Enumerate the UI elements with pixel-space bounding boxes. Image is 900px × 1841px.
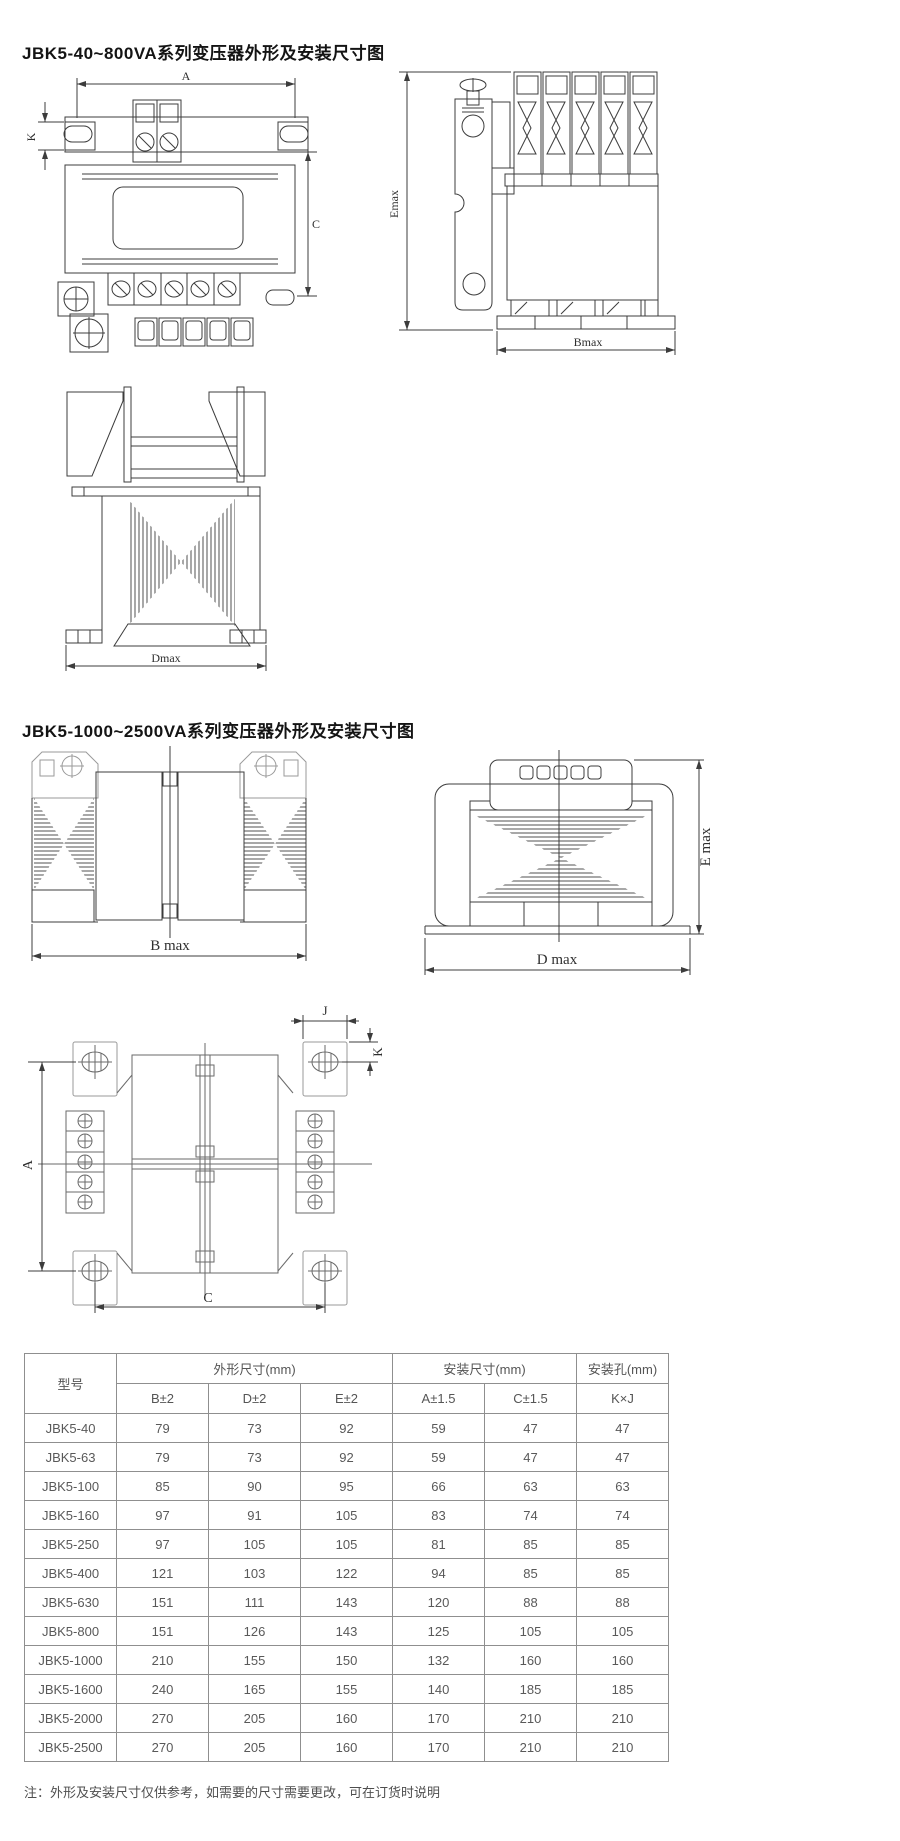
dim-j: J [291,1003,359,1039]
value-cell-d: 126 [209,1617,301,1646]
value-cell-a: 125 [393,1617,485,1646]
body-outline [32,798,306,922]
value-cell-b: 85 [117,1472,209,1501]
value-cell-e: 160 [301,1704,393,1733]
model-cell: JBK5-160 [25,1501,117,1530]
value-cell-kj: 85 [577,1530,669,1559]
core-body [65,165,295,273]
base-feet [497,300,675,329]
value-cell-c: 85 [485,1530,577,1559]
value-cell-d: 165 [209,1675,301,1704]
value-cell-a: 83 [393,1501,485,1530]
value-cell-e: 105 [301,1530,393,1559]
core-clamps [67,387,265,496]
value-cell-d: 90 [209,1472,301,1501]
value-cell-c: 88 [485,1588,577,1617]
dim-label-bmax: Bmax [574,335,603,349]
table-sub-header-row: B±2 D±2 E±2 A±1.5 C±1.5 K×J [25,1384,669,1414]
dim-emax: E max [634,760,714,934]
col-group-outline-dimensions: 外形尺寸(mm) [117,1354,393,1384]
value-cell-b: 79 [117,1443,209,1472]
table-row: JBK5-63 79 73 92 59 47 47 [25,1443,669,1472]
value-cell-a: 140 [393,1675,485,1704]
value-cell-e: 143 [301,1617,393,1646]
terminal-housing [490,760,632,810]
dim-bmax: Bmax [497,331,675,355]
value-cell-e: 92 [301,1443,393,1472]
value-cell-d: 73 [209,1443,301,1472]
dim-dmax: Dmax [66,645,266,671]
value-cell-d: 103 [209,1559,301,1588]
value-cell-kj: 47 [577,1443,669,1472]
value-cell-e: 122 [301,1559,393,1588]
value-cell-a: 59 [393,1443,485,1472]
value-cell-a: 94 [393,1559,485,1588]
value-cell-c: 47 [485,1414,577,1443]
col-header-kj: K×J [577,1384,669,1414]
value-cell-b: 151 [117,1588,209,1617]
value-cell-d: 73 [209,1414,301,1443]
table-row: JBK5-160 97 91 105 83 74 74 [25,1501,669,1530]
value-cell-d: 205 [209,1704,301,1733]
value-cell-kj: 47 [577,1414,669,1443]
col-header-model: 型号 [25,1354,117,1414]
col-group-mounting-hole: 安装孔(mm) [577,1354,669,1384]
mounting-bracket [455,78,514,310]
section-title-large-series: JBK5-1000~2500VA系列变压器外形及安装尺寸图 [22,717,415,742]
dim-label-j: J [322,1003,327,1018]
col-group-mounting-dimensions: 安装尺寸(mm) [393,1354,577,1384]
dim-c: C [95,1283,325,1313]
value-cell-a: 170 [393,1733,485,1762]
value-cell-a: 66 [393,1472,485,1501]
col-header-b: B±2 [117,1384,209,1414]
value-cell-d: 111 [209,1588,301,1617]
value-cell-e: 143 [301,1588,393,1617]
top-terminal-block [133,100,181,162]
dim-label-a: A [182,69,191,83]
model-cell: JBK5-100 [25,1472,117,1501]
footnote: 注：外形及安装尺寸仅供参考，如需要的尺寸需要更改，可在订货时说明 [24,1782,440,1801]
model-cell: JBK5-1000 [25,1646,117,1675]
ground-terminal [70,314,108,352]
terminal-towers [514,72,657,174]
dim-label-dmax: Dmax [151,651,180,665]
value-cell-b: 151 [117,1617,209,1646]
value-cell-c: 74 [485,1501,577,1530]
corner-brackets [32,752,306,798]
table-row: JBK5-250 97 105 105 81 85 85 [25,1530,669,1559]
value-cell-e: 95 [301,1472,393,1501]
coil-window [113,187,243,249]
bottom-terminal-strip [108,273,240,305]
large-top-view-diagram: B max [18,746,353,978]
table-row: JBK5-100 85 90 95 66 63 63 [25,1472,669,1501]
coil-winding [102,496,260,630]
col-header-a: A±1.5 [393,1384,485,1414]
value-cell-kj: 185 [577,1675,669,1704]
value-cell-kj: 210 [577,1733,669,1762]
value-cell-kj: 88 [577,1588,669,1617]
dim-c: C [297,152,320,296]
model-cell: JBK5-1600 [25,1675,117,1704]
value-cell-kj: 63 [577,1472,669,1501]
value-cell-a: 59 [393,1414,485,1443]
value-cell-kj: 85 [577,1559,669,1588]
model-cell: JBK5-2000 [25,1704,117,1733]
value-cell-e: 160 [301,1733,393,1762]
dim-bmax: B max [32,924,306,961]
value-cell-e: 92 [301,1414,393,1443]
mounting-flange [64,117,308,152]
dim-label-k: K [24,132,38,141]
small-front-view-diagram: A K [20,56,325,321]
value-cell-kj: 210 [577,1704,669,1733]
bracket-hole-icon [463,273,485,295]
value-cell-c: 105 [485,1617,577,1646]
mounting-foot [66,624,266,646]
dim-a: A [77,69,295,118]
dim-k: K [342,1028,385,1076]
table-row: JBK5-40 79 73 92 59 47 47 [25,1414,669,1443]
mounting-view-diagram: J K A C [10,1003,390,1315]
dimension-table: 型号 外形尺寸(mm) 安装尺寸(mm) 安装孔(mm) B±2 D±2 E±2… [24,1353,669,1762]
small-top-view-diagram: Dmax [42,308,290,688]
value-cell-a: 170 [393,1704,485,1733]
coil-blocks [96,746,244,938]
model-cell: JBK5-400 [25,1559,117,1588]
table-row: JBK5-1000 210 155 150 132 160 160 [25,1646,669,1675]
value-cell-c: 160 [485,1646,577,1675]
value-cell-c: 185 [485,1675,577,1704]
value-cell-c: 210 [485,1733,577,1762]
value-cell-kj: 74 [577,1501,669,1530]
small-side-view-diagram: Emax [385,52,677,358]
terminal-tops [135,318,253,346]
dim-label-c: C [203,1291,212,1306]
table-row: JBK5-2000 270 205 160 170 210 210 [25,1704,669,1733]
mounting-slot-icon [280,126,308,142]
model-cell: JBK5-250 [25,1530,117,1559]
value-cell-e: 105 [301,1501,393,1530]
value-cell-d: 105 [209,1530,301,1559]
table-row: JBK5-800 151 126 143 125 105 105 [25,1617,669,1646]
value-cell-c: 210 [485,1704,577,1733]
value-cell-b: 210 [117,1646,209,1675]
value-cell-c: 47 [485,1443,577,1472]
transformer-body [435,750,673,942]
table-row: JBK5-2500 270 205 160 170 210 210 [25,1733,669,1762]
table-row: JBK5-400 121 103 122 94 85 85 [25,1559,669,1588]
value-cell-c: 85 [485,1559,577,1588]
dim-label-emax: E max [698,827,714,866]
dim-label-k: K [370,1047,385,1057]
centerlines [38,1043,372,1299]
value-cell-a: 132 [393,1646,485,1675]
large-front-view-diagram: D max E max [420,744,712,996]
value-cell-d: 205 [209,1733,301,1762]
transformer-body-side [505,174,658,300]
table-row: JBK5-1600 240 165 155 140 185 185 [25,1675,669,1704]
value-cell-e: 150 [301,1646,393,1675]
datasheet-page: JBK5-40~800VA系列变压器外形及安装尺寸图 A [0,0,900,1841]
value-cell-c: 63 [485,1472,577,1501]
value-cell-d: 91 [209,1501,301,1530]
table-group-header-row: 型号 外形尺寸(mm) 安装尺寸(mm) 安装孔(mm) [25,1354,669,1384]
col-header-e: E±2 [301,1384,393,1414]
value-cell-a: 81 [393,1530,485,1559]
dim-label-emax: Emax [387,190,401,218]
base-plate [425,926,690,934]
col-header-d: D±2 [209,1384,301,1414]
table-row: JBK5-630 151 111 143 120 88 88 [25,1588,669,1617]
dim-dmax: D max [425,938,690,975]
model-cell: JBK5-40 [25,1414,117,1443]
value-cell-b: 121 [117,1559,209,1588]
model-cell: JBK5-63 [25,1443,117,1472]
dim-label-a: A [21,1159,36,1170]
value-cell-d: 155 [209,1646,301,1675]
value-cell-b: 270 [117,1733,209,1762]
value-cell-b: 97 [117,1501,209,1530]
dim-label-dmax: D max [537,952,578,968]
dim-a: A [21,1062,76,1271]
mounting-slot-icon [266,290,294,305]
value-cell-b: 79 [117,1414,209,1443]
col-header-c: C±1.5 [485,1384,577,1414]
dim-label-c: C [312,217,320,231]
value-cell-kj: 160 [577,1646,669,1675]
value-cell-a: 120 [393,1588,485,1617]
value-cell-b: 270 [117,1704,209,1733]
value-cell-e: 155 [301,1675,393,1704]
dim-k: K [24,102,64,170]
value-cell-b: 97 [117,1530,209,1559]
model-cell: JBK5-2500 [25,1733,117,1762]
value-cell-kj: 105 [577,1617,669,1646]
model-cell: JBK5-630 [25,1588,117,1617]
mounting-slot-icon [64,126,92,142]
model-cell: JBK5-800 [25,1617,117,1646]
value-cell-b: 240 [117,1675,209,1704]
dim-label-bmax: B max [150,938,190,954]
